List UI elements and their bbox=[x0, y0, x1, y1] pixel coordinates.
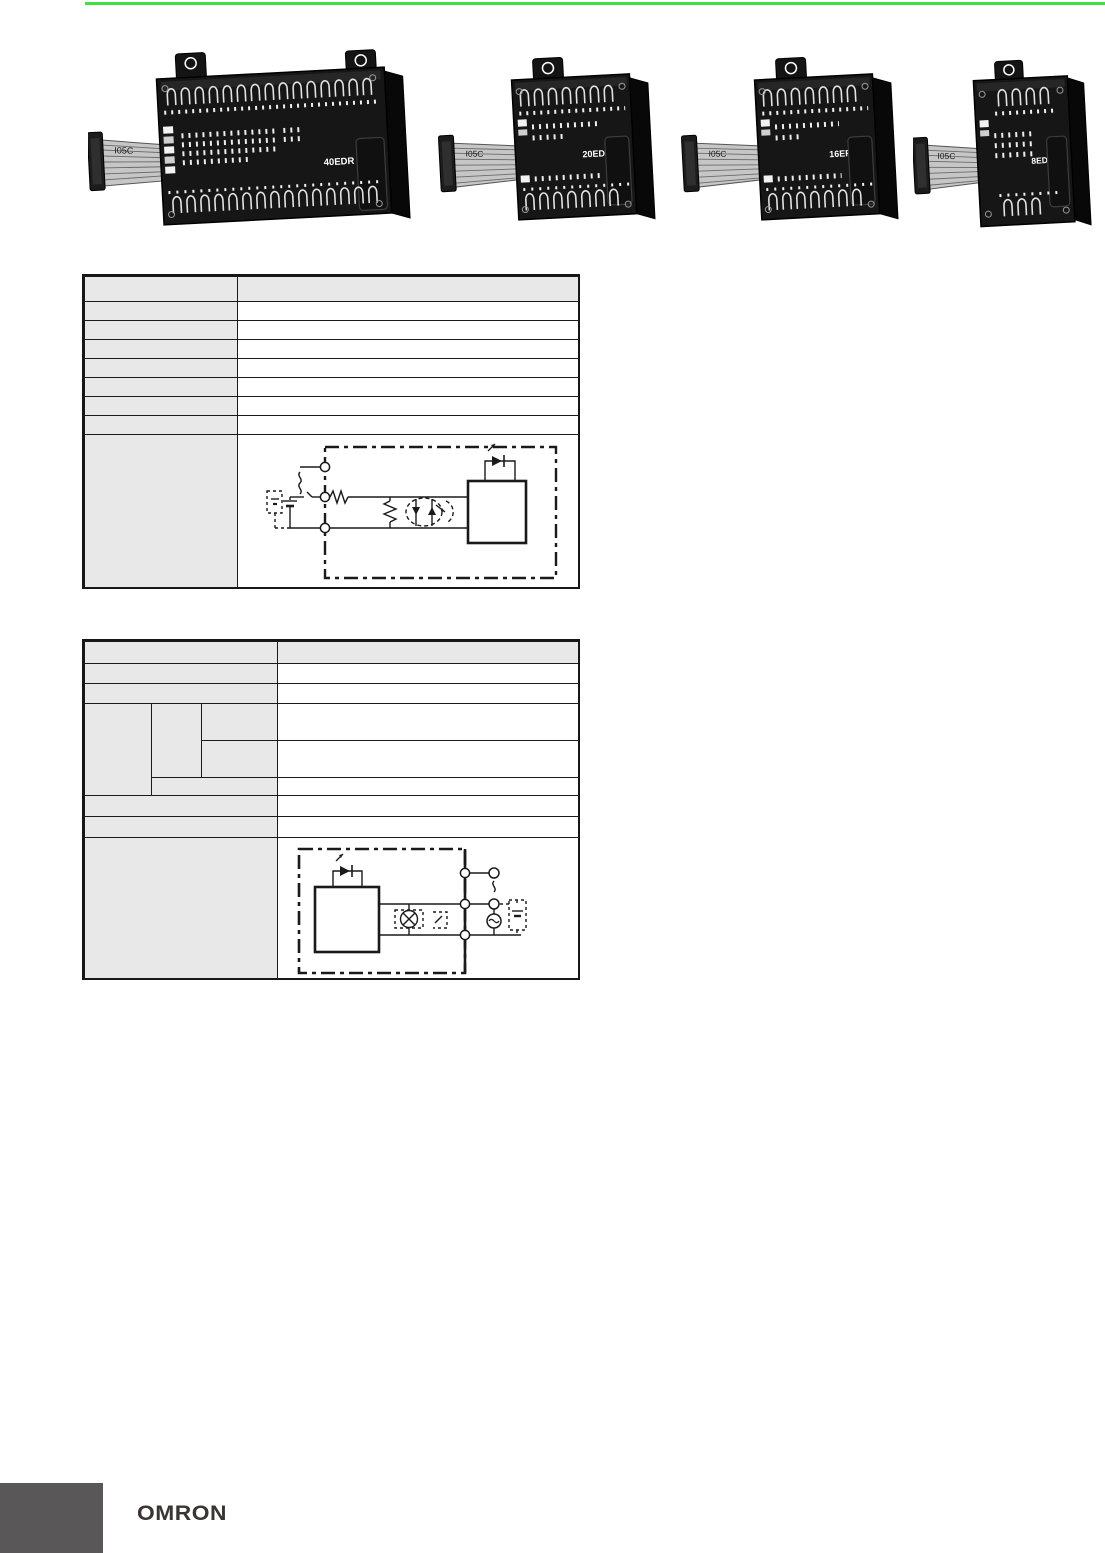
table-sublabel-cell-rowspan bbox=[151, 703, 202, 778]
top-rule bbox=[85, 2, 1105, 5]
resistor-vertical-icon bbox=[384, 501, 396, 522]
cable-label: I05C bbox=[708, 149, 726, 159]
omron-logo: OMRON bbox=[137, 1501, 264, 1527]
table-diagram-cell bbox=[237, 434, 579, 588]
table-label-cell bbox=[84, 301, 238, 321]
table-value-cell bbox=[237, 301, 579, 321]
table-value-cell bbox=[277, 683, 579, 704]
ribbon-cable: I05C bbox=[913, 135, 981, 194]
table-value-cell bbox=[237, 339, 579, 359]
switch-squiggle-icon bbox=[299, 472, 301, 494]
resistor-icon bbox=[330, 491, 348, 503]
ribbon-cable: I05C bbox=[88, 129, 166, 191]
expansion-unit-illustration-40edr: I05C bbox=[88, 44, 423, 244]
table-label-cell bbox=[84, 434, 238, 588]
expansion-unit-illustration-16er: I05C bbox=[680, 52, 910, 238]
output-circuit-diagram bbox=[278, 838, 579, 979]
ribbon-cable: I05C bbox=[681, 132, 762, 192]
table-label-cell bbox=[84, 377, 238, 397]
table-header-cell bbox=[277, 641, 579, 664]
table-value-cell bbox=[237, 377, 579, 397]
expansion-cover bbox=[356, 137, 388, 210]
external-terminal bbox=[489, 868, 499, 878]
alt-supply-dashed-box bbox=[267, 491, 282, 513]
table-value-cell bbox=[237, 396, 579, 416]
table-header-cell bbox=[237, 276, 579, 302]
cable-label: I05C bbox=[937, 151, 955, 161]
table-sublabel-cell bbox=[201, 703, 278, 741]
led-diode-icon bbox=[340, 866, 350, 876]
table-label-cell bbox=[84, 837, 278, 979]
cable-label: I05C bbox=[114, 145, 134, 155]
table-header-cell bbox=[84, 641, 278, 664]
fuse-squiggle-icon bbox=[493, 881, 495, 892]
table-value-cell bbox=[277, 777, 579, 796]
table-sublabel-cell bbox=[201, 740, 278, 778]
optocoupler-icon bbox=[406, 498, 442, 526]
table-label-cell bbox=[84, 415, 238, 435]
input-circuit-diagram bbox=[238, 435, 579, 588]
external-terminal bbox=[489, 899, 499, 909]
table-label-cell bbox=[84, 683, 278, 704]
table-label-cell bbox=[84, 339, 238, 359]
input-spec-table bbox=[82, 274, 580, 589]
table-label-cell bbox=[84, 795, 278, 817]
table-value-cell bbox=[277, 795, 579, 817]
table-value-cell bbox=[237, 358, 579, 378]
led-diode-icon bbox=[492, 456, 502, 466]
table-label-cell-rowspan bbox=[84, 703, 152, 796]
table-value-cell bbox=[277, 816, 579, 838]
table-sublabel-cell-colspan bbox=[151, 777, 278, 796]
table-label-cell bbox=[84, 816, 278, 838]
page-edge-tab bbox=[0, 1483, 103, 1553]
internal-circuits-box bbox=[468, 481, 526, 543]
table-value-cell bbox=[277, 663, 579, 684]
table-label-cell bbox=[84, 320, 238, 340]
unit-label: 40EDR bbox=[323, 156, 354, 169]
unit-body-group: I05C bbox=[88, 44, 410, 235]
table-header-cell bbox=[84, 276, 238, 302]
output-spec-table bbox=[82, 639, 580, 980]
table-value-cell bbox=[237, 320, 579, 340]
table-value-cell bbox=[277, 740, 579, 778]
relay-contact-dashed bbox=[433, 912, 447, 928]
table-value-cell bbox=[237, 415, 579, 435]
table-diagram-cell bbox=[277, 837, 579, 979]
table-value-cell bbox=[277, 703, 579, 741]
unit-label: 8ED bbox=[1031, 155, 1048, 166]
table-label-cell bbox=[84, 396, 238, 416]
table-label-cell bbox=[84, 663, 278, 684]
ribbon-cable: I05C bbox=[438, 132, 519, 192]
datasheet-page: I05C bbox=[0, 0, 1105, 1553]
table-label-cell bbox=[84, 358, 238, 378]
expansion-cover bbox=[1046, 136, 1070, 207]
expansion-unit-illustration-8ed: I05C 8ED bbox=[913, 55, 1105, 243]
cable-label: I05C bbox=[465, 149, 483, 159]
internal-circuits-box bbox=[315, 887, 379, 952]
expansion-unit-illustration-20edr1: I05C bbox=[437, 52, 667, 238]
